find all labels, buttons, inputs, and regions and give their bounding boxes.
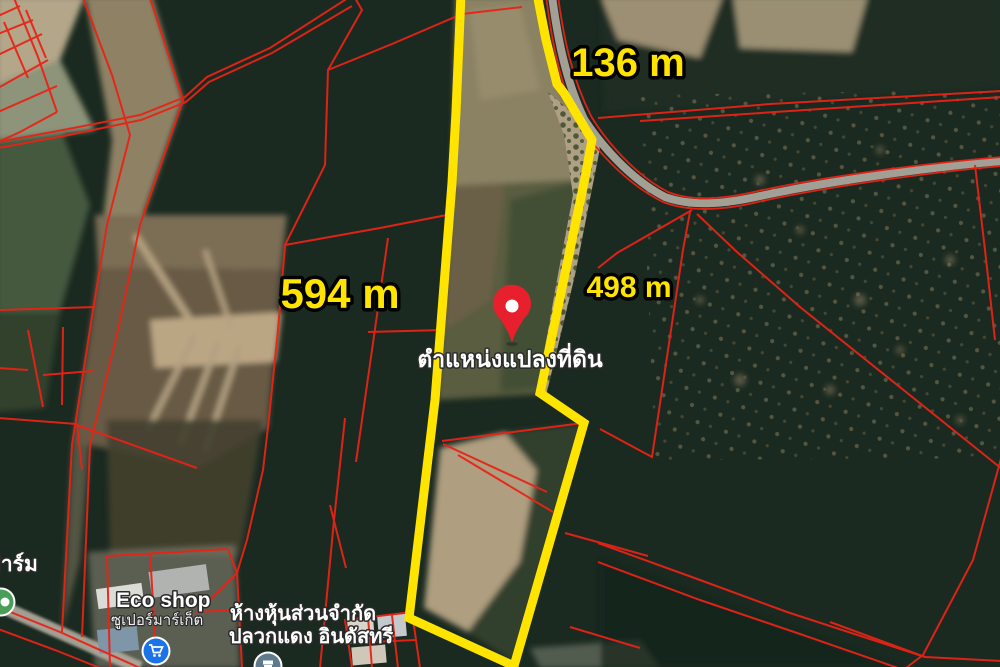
- poi-company-label-line2: ปลวกแดง อินดัสทรี: [229, 625, 394, 648]
- icon-glyph: [153, 654, 156, 657]
- icon-glyph: [158, 654, 161, 657]
- dimension-label-top: 136 m: [571, 41, 684, 85]
- icon-disc: [144, 639, 169, 664]
- shopping-cart-icon[interactable]: [142, 637, 171, 666]
- icon-glyph: [263, 661, 273, 665]
- satellite-map: 136 m 594 m 498 m ตำแหน่งแปลงที่ดิน ฟาร์…: [0, 0, 1000, 667]
- icon-glyph: [1, 598, 10, 607]
- dimension-label-right: 498 m: [586, 271, 671, 304]
- dimension-label-left: 594 m: [280, 270, 399, 317]
- pin-label: ตำแหน่งแปลงที่ดิน: [417, 342, 603, 372]
- pin-hole: [506, 300, 519, 313]
- poi-farm-label: ฟาร์ม: [0, 552, 38, 576]
- building-roof: [97, 626, 139, 654]
- poi-eco-shop-label: Eco shop: [116, 589, 211, 612]
- orchard-area: [640, 90, 1000, 460]
- map-canvas[interactable]: 136 m 594 m 498 m ตำแหน่งแปลงที่ดิน ฟาร์…: [0, 0, 1000, 667]
- poi-eco-shop-category: ซูเปอร์มาร์เก็ต: [111, 610, 203, 629]
- poi-company-label-line1: ห้างหุ้นส่วนจำกัด: [230, 602, 376, 626]
